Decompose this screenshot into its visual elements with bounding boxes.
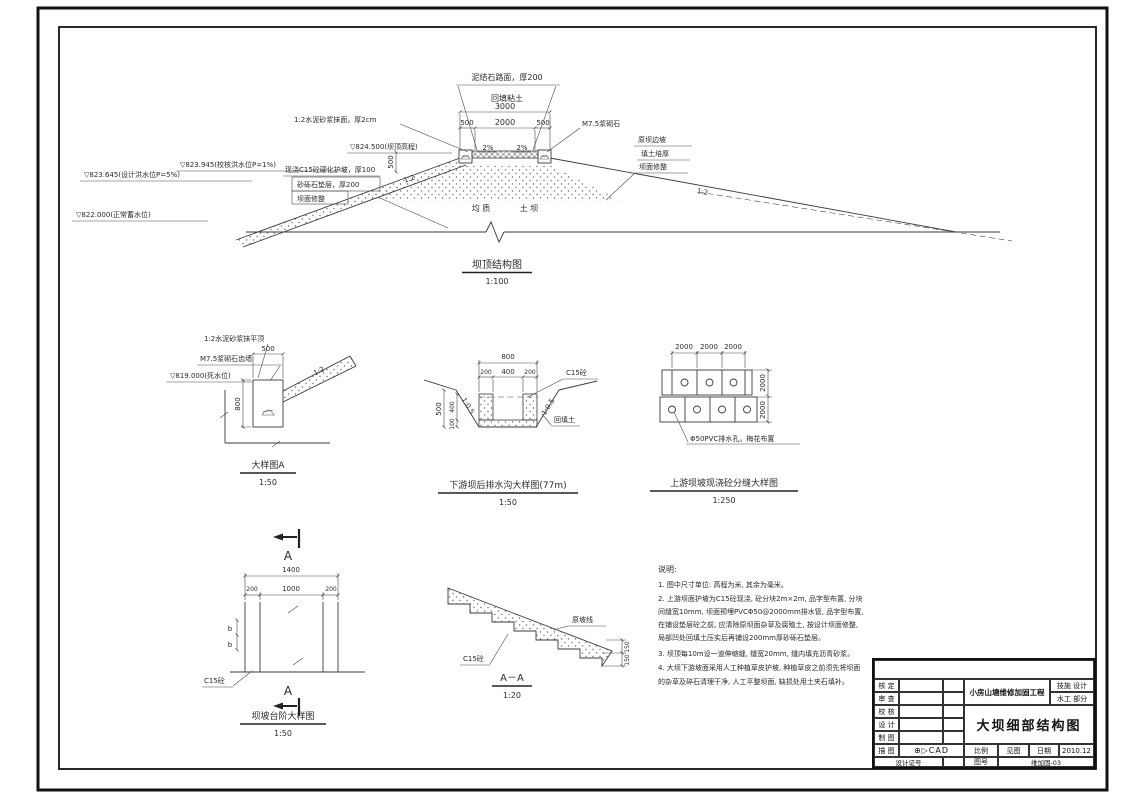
steps-plan-title: 坝坡台阶大样图 — [251, 710, 314, 722]
check-flood-label: ▽823.945(校核洪水位P=1%) — [180, 160, 276, 169]
role-value-cell — [899, 718, 943, 731]
detail-a-title: 大样图A — [251, 459, 285, 471]
cad-logo: ⊕▷CAD — [899, 744, 964, 757]
license-no-label: 设计证号 — [874, 757, 943, 767]
masonry-label: M7.5浆砌石 — [582, 119, 620, 128]
cross-section-title: 坝顶结构图 — [472, 258, 522, 271]
slope-right: 1:0.5 — [540, 397, 556, 416]
role-value-cell — [899, 679, 943, 692]
steps-section-detail: 150 150 原坡线 C15砼 A－A 1:20 — [448, 588, 631, 700]
steps-plan-detail: A A 1400 200 1000 200 b b C15砼 坝坡台阶大样图 1… — [202, 529, 365, 738]
body-label-1: 均 质 — [472, 203, 491, 213]
dim-500-vert: 500 — [387, 155, 395, 168]
backfill-label: 回填粘土 — [491, 93, 523, 103]
joint-title: 上游坝坡现浇砼分缝大样图 — [670, 477, 778, 489]
trim-label: 坝面修整 — [297, 194, 325, 203]
design-part: 水工 部分 — [1050, 692, 1094, 705]
date-value: 2010.12 — [1059, 744, 1094, 757]
notes-line: 间缝宽10mm, 坝面预埋PVCΦ50@2000mm排水管, 品字型布置, — [658, 607, 863, 616]
scale-value: 见图 — [998, 744, 1029, 757]
detail-a-scale: 1:50 — [259, 478, 277, 487]
notes-line: 局部凹处回填土压实后再铺设200mm厚砂砾石垫层。 — [658, 633, 825, 642]
orig-slope-label: 原坝边坡 — [638, 135, 666, 144]
dim-200a: 200 — [246, 586, 258, 593]
dim-2000b: 2000 — [700, 343, 718, 351]
dead-level-label: ▽819.000(死水位) — [170, 371, 231, 380]
detail-a: 1:2水泥砂浆抹平顶 M7.5浆砌石齿墙 ▽819.000(死水位) 500 8… — [166, 334, 356, 487]
dim-2000-r1: 2000 — [759, 374, 767, 392]
drain-scale: 1:50 — [499, 498, 517, 507]
c15-label: C15砼 — [566, 368, 587, 377]
c15-slope-label: 现浇C15砼硬化护坡，厚100 — [285, 165, 375, 174]
dim-b1: b — [228, 625, 233, 633]
road-surface-label: 泥结石路面，厚200 — [471, 72, 542, 82]
steps-section-scale: 1:20 — [503, 691, 521, 700]
fill-thicken-label: 填土培厚 — [641, 149, 669, 158]
dim-2000-r2: 2000 — [759, 401, 767, 419]
section-arrow-icon — [273, 703, 283, 710]
steps-section-title: A－A — [500, 673, 524, 684]
notes-line: 2. 上游坝面护坡为C15砼现浇, 砼分块2m×2m, 品字型布置, 分块 — [658, 594, 862, 603]
role-extra-cell — [943, 718, 964, 731]
dim-100: 100 — [449, 418, 456, 430]
section-letter-bottom: A — [284, 684, 293, 698]
dim-500-left: 500 — [460, 119, 473, 127]
dim-200b: 200 — [524, 369, 536, 376]
drawing-title: 大坝细部结构图 — [964, 705, 1094, 744]
c15-label: C15砼 — [204, 676, 225, 685]
dim-800: 800 — [501, 353, 514, 361]
role-extra-cell — [943, 679, 964, 692]
role-label-designed: 设 计 — [874, 718, 899, 731]
role-extra-cell — [943, 692, 964, 705]
role-value-cell — [899, 731, 943, 744]
title-block: 核 定 审 查 校 核 设 计 制 图 描 图 ⊕▷CAD 设计证号 小房山塘维… — [872, 658, 1096, 769]
backfill-label: 回填土 — [554, 415, 575, 424]
design-flood-label: ▽823.645(设计洪水位P=5%) — [84, 170, 180, 179]
project-name: 小房山塘维修加固工程 — [964, 679, 1050, 705]
design-stage: 技施 设计 — [1050, 679, 1094, 692]
dim-200a: 200 — [480, 369, 492, 376]
notes-line: 4. 大坝下游坡面采用人工种植草皮护坡, 种植草皮之前须先将坝面 — [658, 663, 860, 672]
drawing-sheet: 3000 500 2000 500 500 泥结石路面，厚200 回填粘土 1:… — [0, 0, 1131, 800]
steps-plan-scale: 1:50 — [274, 729, 292, 738]
joint-scale: 1:250 — [712, 496, 735, 505]
c15-label: C15砼 — [463, 654, 484, 663]
pct-right: 2% — [516, 144, 527, 152]
date-label: 日期 — [1029, 744, 1059, 757]
notes-line: 3. 坝顶每10m设一道伸缩缝, 缝宽20mm, 缝内填充沥青砂浆。 — [658, 649, 854, 658]
dim-2000a: 2000 — [675, 343, 693, 351]
dim-3000: 3000 — [495, 102, 515, 111]
dam-cross-section: 3000 500 2000 500 500 泥结石路面，厚200 回填粘土 1:… — [72, 72, 1012, 286]
role-label-traced: 描 图 — [874, 744, 899, 757]
slope-12-right: 1:2 — [696, 187, 708, 197]
mortar-label: 1:2水泥砂浆抹面，厚2cm — [294, 115, 377, 124]
cross-section-scale: 1:100 — [485, 277, 508, 286]
notes-line: 的杂草及碎石清理干净, 人工平整坝面, 缺损处用土夹石填补。 — [658, 677, 849, 686]
dim-1000: 1000 — [282, 585, 300, 593]
role-label-drafted: 制 图 — [874, 731, 899, 744]
orig-slope-line-label: 原坡线 — [572, 615, 593, 624]
dim-400v: 400 — [449, 401, 456, 413]
body-label-2: 土 坝 — [520, 203, 539, 213]
notes-line: 在铺设垫层砼之前, 应清除原坝面杂草及腐殖土, 按设计坝面修整, — [658, 620, 858, 629]
dim-150a: 150 — [624, 641, 631, 653]
role-extra-cell — [943, 731, 964, 744]
dim-150b: 150 — [624, 654, 631, 666]
masonry-wall-label: M7.5浆砌石齿墙 — [200, 354, 252, 363]
dim-200b: 200 — [325, 586, 337, 593]
notes-line: 1. 图中尺寸单位: 高程为米, 其余为毫米。 — [658, 580, 788, 589]
drawing-no-value: 维加固-03 — [998, 757, 1094, 767]
slope-left: 1:0.5 — [460, 396, 476, 415]
license-no-cell — [943, 757, 964, 767]
drain-title: 下游坝后排水沟大样图(77m) — [449, 479, 566, 491]
role-label-checked: 校 核 — [874, 705, 899, 718]
notes-block: 说明: 1. 图中尺寸单位: 高程为米, 其余为毫米。 2. 上游坝面护坡为C1… — [658, 564, 863, 686]
section-arrow-icon — [273, 534, 283, 541]
section-letter-top: A — [284, 549, 293, 563]
role-label-reviewed: 审 查 — [874, 692, 899, 705]
notes-heading: 说明: — [658, 564, 677, 574]
pvc-drain-label: Φ50PVC排水孔，梅花布置 — [690, 434, 774, 443]
dim-400: 400 — [501, 368, 514, 376]
dim-2000: 2000 — [495, 118, 515, 127]
dim-b2: b — [228, 641, 233, 649]
role-value-cell — [899, 705, 943, 718]
scale-label: 比例 — [964, 744, 998, 757]
joint-detail: 2000 2000 2000 2000 2000 Φ50PVC排水孔，梅花布置 … — [650, 343, 800, 505]
drawing-no-label: 图号 — [964, 757, 998, 767]
face-trim-label: 坝面修整 — [639, 162, 667, 171]
drain-detail: 800 200 400 200 500 400 100 1:0.5 1:0.5 … — [424, 353, 598, 507]
dim-2000c: 2000 — [724, 343, 742, 351]
dim-500: 500 — [261, 345, 274, 353]
role-extra-cell — [943, 705, 964, 718]
cushion-label: 砂砾石垫层，厚200 — [297, 180, 359, 189]
dim-1400: 1400 — [282, 566, 300, 574]
dim-500: 500 — [435, 402, 443, 415]
crest-elevation-label: ▽824.500(坝顶高程) — [350, 142, 418, 151]
role-value-cell — [899, 692, 943, 705]
mortar-top-label: 1:2水泥砂浆抹平顶 — [204, 334, 264, 343]
title-block-empty-strip — [874, 660, 1094, 679]
dim-800: 800 — [234, 397, 242, 410]
normal-level-label: ▽822.000(正常蓄水位) — [76, 210, 151, 219]
role-label-approved: 核 定 — [874, 679, 899, 692]
pct-left: 2% — [482, 144, 493, 152]
